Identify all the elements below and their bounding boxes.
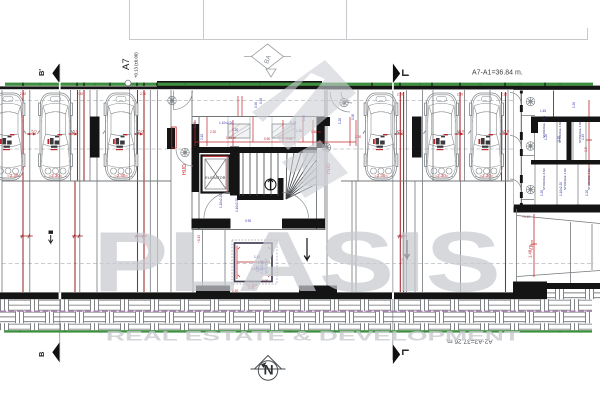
svg-text:1.48 m: 1.48 m — [311, 130, 321, 134]
svg-text:2.20: 2.20 — [210, 130, 216, 134]
svg-text:0.90: 0.90 — [254, 102, 258, 108]
svg-text:5.0: 5.0 — [459, 130, 464, 134]
svg-text:+0.13 (±0.00): +0.13 (±0.00) — [134, 52, 139, 78]
svg-text:1.45: 1.45 — [540, 109, 546, 113]
svg-text:2.30: 2.30 — [501, 93, 507, 97]
svg-text:5.0: 5.0 — [73, 130, 78, 134]
svg-text:STORAGE 4.8m: STORAGE 4.8m — [587, 167, 591, 190]
svg-text:5.0: 5.0 — [138, 130, 143, 134]
svg-text:PLASIS: PLASIS — [93, 215, 501, 310]
svg-text:STORAGE 4.8m: STORAGE 4.8m — [542, 167, 546, 190]
svg-text:2.30: 2.30 — [140, 92, 146, 96]
svg-text:2.10: 2.10 — [200, 134, 204, 140]
svg-text:1.20: 1.20 — [572, 102, 576, 108]
svg-text:ELEVATOR: ELEVATOR — [205, 176, 225, 180]
svg-text:5.0: 5.0 — [31, 130, 36, 134]
svg-text:B': B' — [37, 69, 46, 76]
svg-text:1.10x2.20: 1.10x2.20 — [219, 121, 233, 125]
svg-text:0.90: 0.90 — [351, 114, 355, 120]
svg-text:2.30: 2.30 — [77, 92, 83, 96]
svg-text:A7: A7 — [121, 58, 132, 70]
svg-text:HUD: HUD — [182, 164, 188, 175]
svg-text:STORAGE 4.8m: STORAGE 4.8m — [578, 120, 582, 143]
svg-text:B: B — [37, 351, 46, 357]
svg-text:0.90: 0.90 — [264, 137, 270, 141]
svg-text:2.30: 2.30 — [457, 93, 463, 97]
svg-text:0.90: 0.90 — [259, 98, 263, 104]
svg-text:REAL ESTATE & DEVELOPMENT: REAL ESTATE & DEVELOPMENT — [106, 328, 521, 344]
svg-text:A7-A1=36.84 m.: A7-A1=36.84 m. — [472, 70, 523, 77]
svg-text:STORAGE 4.8m: STORAGE 4.8m — [542, 115, 546, 138]
svg-text:STORAGE 4.8m: STORAGE 4.8m — [558, 120, 562, 143]
svg-text:2.30: 2.30 — [20, 92, 26, 96]
svg-text:2.30: 2.30 — [397, 93, 403, 97]
svg-text:1.10x2.20: 1.10x2.20 — [219, 194, 223, 208]
svg-text:1.10x2.20: 1.10x2.20 — [235, 198, 239, 212]
svg-text:5.0: 5.0 — [504, 130, 509, 134]
svg-text:1.48 m: 1.48 m — [226, 136, 236, 140]
svg-text:5.0: 5.0 — [398, 130, 403, 134]
svg-text:STORAGE 4.8m: STORAGE 4.8m — [563, 167, 567, 190]
svg-text:1.48 m: 1.48 m — [528, 245, 533, 258]
svg-text:1.20: 1.20 — [338, 118, 342, 124]
